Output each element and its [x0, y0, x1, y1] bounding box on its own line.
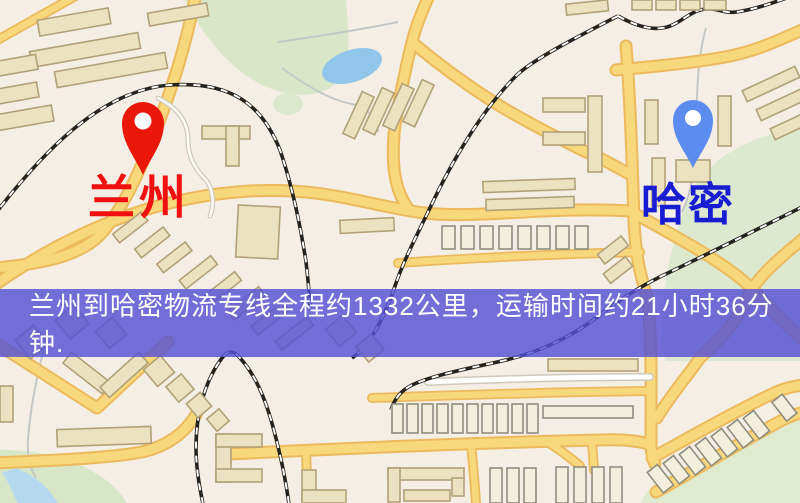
destination-label: 哈密 — [641, 182, 735, 227]
route-info-text: 兰州到哈密物流专线全程约1332公里，运输时间约21小时36分钟. — [29, 286, 800, 360]
route-info-banner: 兰州到哈密物流专线全程约1332公里，运输时间约21小时36分钟. — [0, 289, 800, 357]
map-canvas — [0, 0, 800, 503]
origin-label: 兰州 — [88, 174, 190, 221]
map-image: 兰州 哈密 兰州到哈密物流专线全程约1332公里，运输时间约21小时36分钟. — [0, 0, 800, 503]
